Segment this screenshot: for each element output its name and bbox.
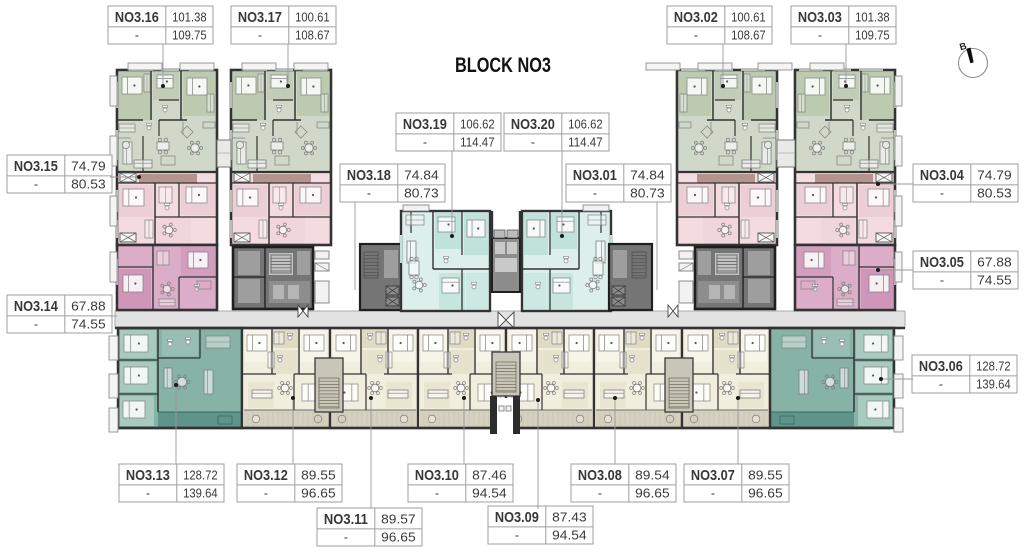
svg-text:NO3.07: NO3.07 [691,467,735,484]
svg-text:-: - [264,487,268,501]
svg-text:96.65: 96.65 [381,530,416,545]
svg-text:128.72: 128.72 [183,468,218,483]
svg-text:109.75: 109.75 [172,28,207,43]
svg-text:139.64: 139.64 [976,377,1011,392]
svg-text:74.79: 74.79 [71,159,106,174]
svg-text:NO3.08: NO3.08 [578,467,622,484]
svg-text:-: - [367,187,371,201]
svg-text:96.65: 96.65 [748,486,783,501]
svg-text:NO3.04: NO3.04 [920,167,965,184]
svg-text:NO3.05: NO3.05 [920,254,964,271]
svg-text:NO3.17: NO3.17 [238,9,282,26]
svg-text:87.46: 87.46 [472,468,507,483]
svg-text:74.55: 74.55 [71,317,106,332]
svg-text:139.64: 139.64 [183,486,218,501]
svg-text:-: - [818,29,822,43]
svg-text:NO3.15: NO3.15 [14,158,58,175]
svg-text:87.43: 87.43 [552,510,587,525]
svg-text:80.53: 80.53 [71,177,106,192]
svg-text:NO3.06: NO3.06 [919,358,963,375]
svg-text:NO3.13: NO3.13 [126,467,170,484]
svg-text:NO3.14: NO3.14 [14,298,59,315]
svg-text:-: - [939,378,943,392]
svg-text:NO3.03: NO3.03 [798,9,842,26]
svg-text:100.61: 100.61 [295,10,330,25]
svg-text:80.73: 80.73 [404,186,439,201]
svg-text:96.65: 96.65 [635,486,670,501]
svg-text:-: - [435,487,439,501]
svg-text:94.54: 94.54 [552,528,587,543]
svg-text:NO3.18: NO3.18 [347,167,391,184]
svg-text:100.61: 100.61 [731,10,766,25]
svg-text:NO3.12: NO3.12 [244,467,288,484]
svg-text:89.55: 89.55 [301,468,336,483]
svg-text:-: - [515,529,519,543]
svg-text:-: - [258,29,262,43]
svg-text:-: - [598,487,602,501]
svg-text:NO3.16: NO3.16 [115,9,159,26]
svg-text:67.88: 67.88 [977,255,1012,270]
svg-text:108.67: 108.67 [731,28,766,43]
svg-text:NO3.20: NO3.20 [511,116,555,133]
svg-text:-: - [34,178,38,192]
svg-text:NO3.01: NO3.01 [573,167,617,184]
svg-text:114.47: 114.47 [568,135,603,150]
svg-text:128.72: 128.72 [976,359,1011,374]
svg-text:NO3.09: NO3.09 [495,509,539,526]
svg-text:108.67: 108.67 [295,28,330,43]
svg-text:-: - [694,29,698,43]
svg-text:NO3.11: NO3.11 [324,511,368,528]
svg-text:89.55: 89.55 [748,468,783,483]
svg-text:80.73: 80.73 [630,186,665,201]
svg-text:80.53: 80.53 [977,186,1012,201]
svg-text:74.55: 74.55 [977,273,1012,288]
svg-text:74.79: 74.79 [977,168,1012,183]
svg-text:74.84: 74.84 [404,168,439,183]
svg-text:-: - [423,136,427,150]
svg-text:NO3.02: NO3.02 [674,9,718,26]
svg-text:-: - [593,187,597,201]
svg-text:-: - [135,29,139,43]
svg-text:-: - [531,136,535,150]
svg-text:-: - [940,187,944,201]
svg-text:-: - [711,487,715,501]
svg-text:-: - [146,487,150,501]
svg-text:109.75: 109.75 [855,28,890,43]
svg-text:89.54: 89.54 [635,468,670,483]
svg-text:114.47: 114.47 [460,135,495,150]
svg-text:101.38: 101.38 [172,10,207,25]
svg-text:NO3.19: NO3.19 [403,116,447,133]
svg-text:-: - [940,274,944,288]
svg-text:101.38: 101.38 [855,10,890,25]
svg-text:89.57: 89.57 [381,512,416,527]
svg-text:BLOCK NO3: BLOCK NO3 [455,53,551,77]
svg-text:74.84: 74.84 [630,168,665,183]
svg-text:NO3.10: NO3.10 [415,467,459,484]
svg-text:106.62: 106.62 [460,117,495,132]
svg-text:67.88: 67.88 [71,299,106,314]
svg-text:94.54: 94.54 [472,486,507,501]
svg-text:-: - [344,531,348,545]
svg-text:106.62: 106.62 [568,117,603,132]
svg-text:-: - [34,318,38,332]
svg-text:96.65: 96.65 [301,486,336,501]
